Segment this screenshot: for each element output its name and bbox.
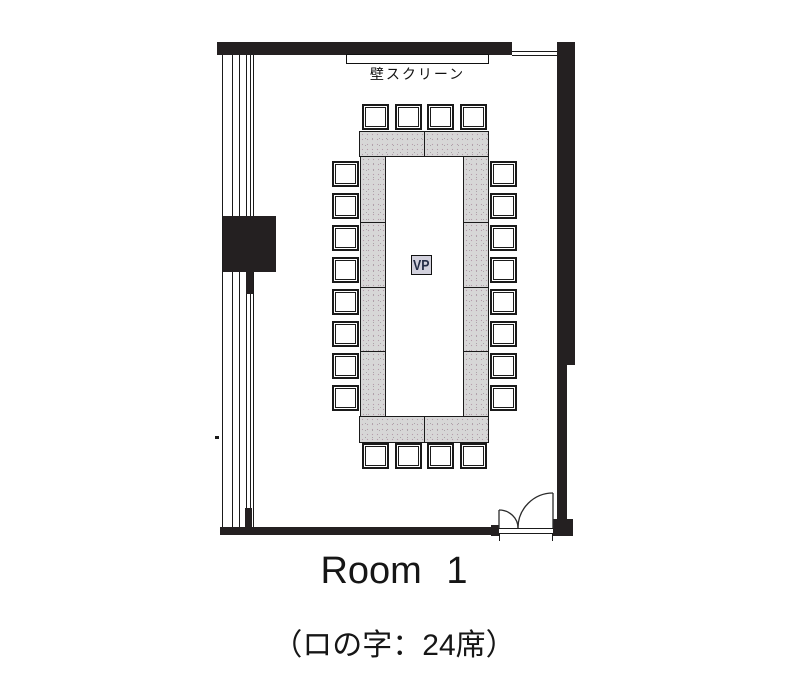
chair [332,321,359,347]
chair [490,385,517,411]
wall-bottom-right-corner [553,519,573,536]
wall-right-lower [557,365,567,520]
wall-column-box [223,216,276,272]
chair [332,385,359,411]
chair [395,104,422,130]
window-break-mark [215,436,219,439]
table-segment [360,287,386,352]
chair [332,225,359,251]
chair [395,443,422,469]
door-threshold-tick [552,534,553,541]
room-caption: （ロの字：24席） [94,620,694,664]
door-threshold-line [499,528,553,529]
floor-plan: 壁スクリーン VP Room 1 （ロの字：24席） [0,0,787,679]
window-mullion-line [222,55,223,527]
door-threshold-line [499,533,553,534]
room-title: Room 1 [94,550,694,593]
projector-box: VP [411,255,432,275]
door-arc-large [518,493,553,528]
chair [490,353,517,379]
wall-screen-label: 壁スクリーン [346,64,489,84]
table-segment [463,156,489,223]
door-arc-small [499,510,518,528]
chair [362,104,389,130]
wall-stub-below-column [246,272,253,294]
chair [490,289,517,315]
window-mullion-line [239,55,240,527]
window-mullion-line [232,55,233,527]
table-segment [359,131,425,157]
wall-bottom [220,527,491,535]
chair [332,289,359,315]
chair [332,257,359,283]
table-segment [424,416,489,443]
chair [490,257,517,283]
table-segment [424,131,489,157]
chair [460,104,487,130]
chair [490,225,517,251]
table-segment [359,416,425,443]
table-segment [360,156,386,223]
chair [490,161,517,187]
chair [332,161,359,187]
chair [332,193,359,219]
table-segment [360,351,386,417]
chair [362,443,389,469]
table-segment [463,287,489,352]
wall-screen [346,54,489,64]
table-segment [463,222,489,288]
chair [427,443,454,469]
chair [427,104,454,130]
table-segment [463,351,489,417]
door-threshold-tick [499,534,500,541]
chair [460,443,487,469]
projector-label: VP [413,257,429,274]
wall-stub-bottom-left [245,508,252,527]
door-jamb-left [491,525,499,536]
chair [490,321,517,347]
chair [332,353,359,379]
table-segment [360,222,386,288]
chair [490,193,517,219]
wall-right-upper [557,42,575,365]
window-top-right [512,51,558,56]
window-mullion-line [253,55,254,527]
